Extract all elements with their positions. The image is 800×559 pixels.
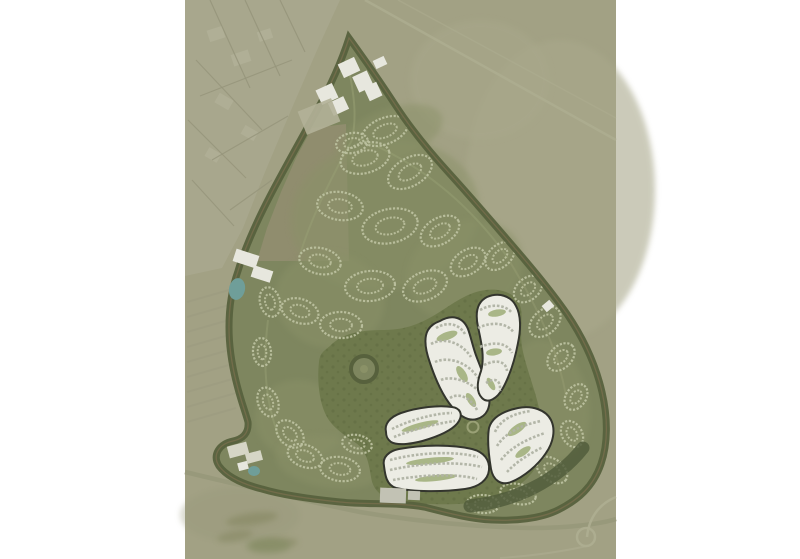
pond [248, 466, 260, 476]
south-building [408, 491, 420, 500]
roundabout [468, 422, 479, 433]
masterplan-aerial-map [0, 0, 800, 559]
desert-green-smudge [246, 538, 290, 554]
south-building [380, 488, 407, 504]
map-feature-root [180, 0, 655, 559]
park-circle-center [360, 365, 368, 373]
page [0, 0, 800, 559]
